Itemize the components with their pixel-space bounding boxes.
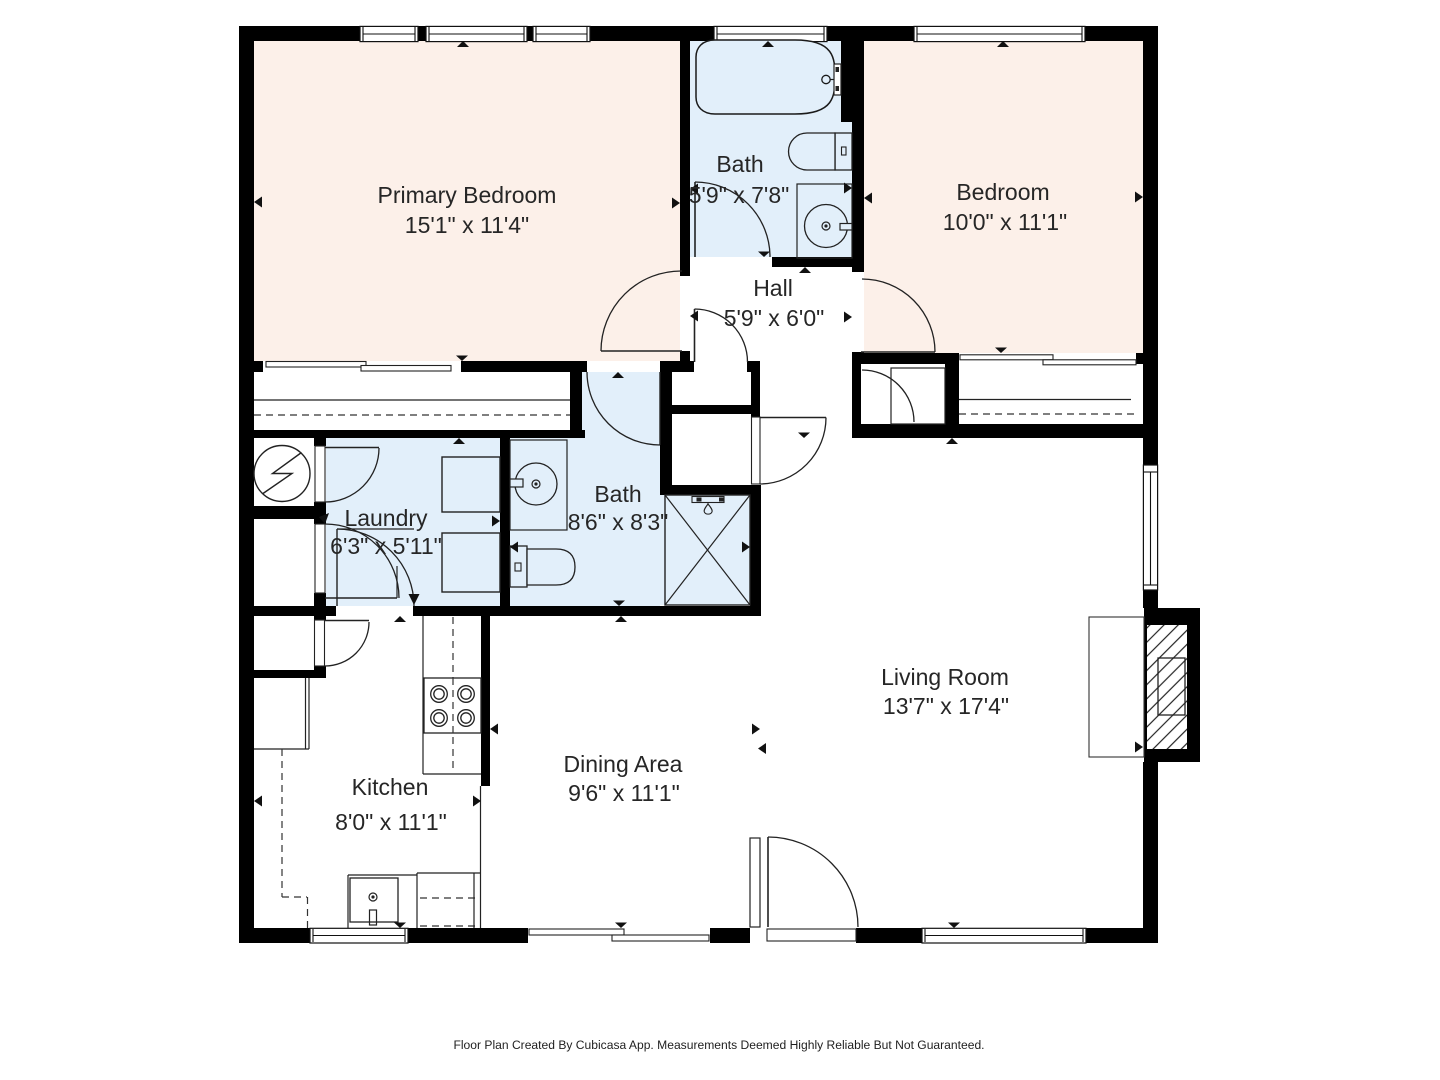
svg-text:Living Room: Living Room	[881, 664, 1009, 690]
svg-text:13'7" x 17'4": 13'7" x 17'4"	[883, 693, 1009, 719]
svg-text:9'6" x 11'1": 9'6" x 11'1"	[568, 780, 680, 806]
svg-text:Laundry: Laundry	[344, 505, 428, 531]
svg-text:Bedroom: Bedroom	[956, 179, 1049, 205]
svg-text:8'0" x 11'1": 8'0" x 11'1"	[335, 809, 447, 835]
svg-text:Dining Area: Dining Area	[564, 751, 683, 777]
svg-text:Kitchen: Kitchen	[352, 774, 429, 800]
svg-text:15'1" x 11'4": 15'1" x 11'4"	[405, 212, 529, 238]
svg-text:8'6" x 8'3": 8'6" x 8'3"	[568, 509, 669, 535]
svg-text:Floor Plan Created By Cubicasa: Floor Plan Created By Cubicasa App. Meas…	[453, 1038, 984, 1052]
svg-text:5'9" x 6'0": 5'9" x 6'0"	[724, 305, 825, 331]
svg-text:Bath: Bath	[716, 151, 763, 177]
svg-text:5'9" x 7'8": 5'9" x 7'8"	[689, 182, 790, 208]
svg-text:6'3" x 5'11": 6'3" x 5'11"	[330, 533, 442, 559]
svg-text:Primary Bedroom: Primary Bedroom	[378, 182, 557, 208]
svg-text:10'0" x 11'1": 10'0" x 11'1"	[943, 209, 1067, 235]
svg-text:Bath: Bath	[594, 481, 641, 507]
svg-text:Hall: Hall	[753, 275, 793, 301]
